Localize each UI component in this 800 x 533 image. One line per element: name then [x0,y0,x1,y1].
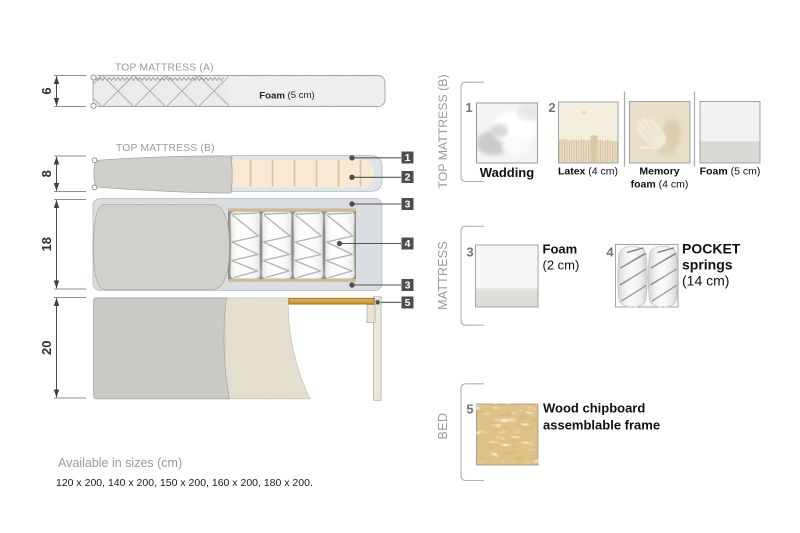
svg-text:Foam (5 cm): Foam (5 cm) [700,166,761,178]
svg-text:(14 cm): (14 cm) [682,273,729,289]
svg-text:4: 4 [405,238,411,250]
svg-text:POCKET: POCKET [682,241,741,257]
svg-text:5: 5 [405,297,411,309]
svg-text:Available in sizes (cm): Available in sizes (cm) [58,456,182,470]
svg-text:2: 2 [548,100,555,115]
svg-text:1: 1 [405,152,411,164]
svg-text:120 x 200, 140 x 200, 150 x 20: 120 x 200, 140 x 200, 150 x 200, 160 x 2… [56,477,313,489]
svg-text:20: 20 [39,341,54,355]
svg-text:6: 6 [39,87,54,94]
svg-text:8: 8 [39,170,54,177]
svg-text:(2 cm): (2 cm) [543,258,580,273]
svg-text:springs: springs [682,257,733,273]
svg-text:Memory: Memory [639,166,679,178]
svg-text:3: 3 [405,280,411,292]
svg-text:3: 3 [405,199,411,211]
svg-text:TOP MATTRESS (B): TOP MATTRESS (B) [116,143,215,154]
svg-text:BED: BED [436,413,450,440]
svg-text:MATTRESS: MATTRESS [436,241,450,310]
svg-text:Foam (5 cm): Foam (5 cm) [259,90,314,101]
svg-text:Wood chipboard: Wood chipboard [543,401,645,416]
svg-text:foam (4 cm): foam (4 cm) [631,179,689,191]
svg-text:assemblable frame: assemblable frame [543,418,660,433]
svg-text:Latex (4 cm): Latex (4 cm) [558,166,618,178]
svg-text:Wadding: Wadding [480,165,534,180]
svg-text:4: 4 [606,245,614,260]
svg-text:18: 18 [39,237,54,251]
svg-text:2: 2 [405,172,411,184]
svg-text:Foam: Foam [543,242,578,257]
svg-text:TOP MATTRESS (B): TOP MATTRESS (B) [436,74,450,188]
svg-text:TOP MATTRESS (A): TOP MATTRESS (A) [115,63,214,74]
svg-text:3: 3 [466,245,473,260]
svg-text:5: 5 [466,402,473,417]
svg-text:1: 1 [465,100,472,115]
